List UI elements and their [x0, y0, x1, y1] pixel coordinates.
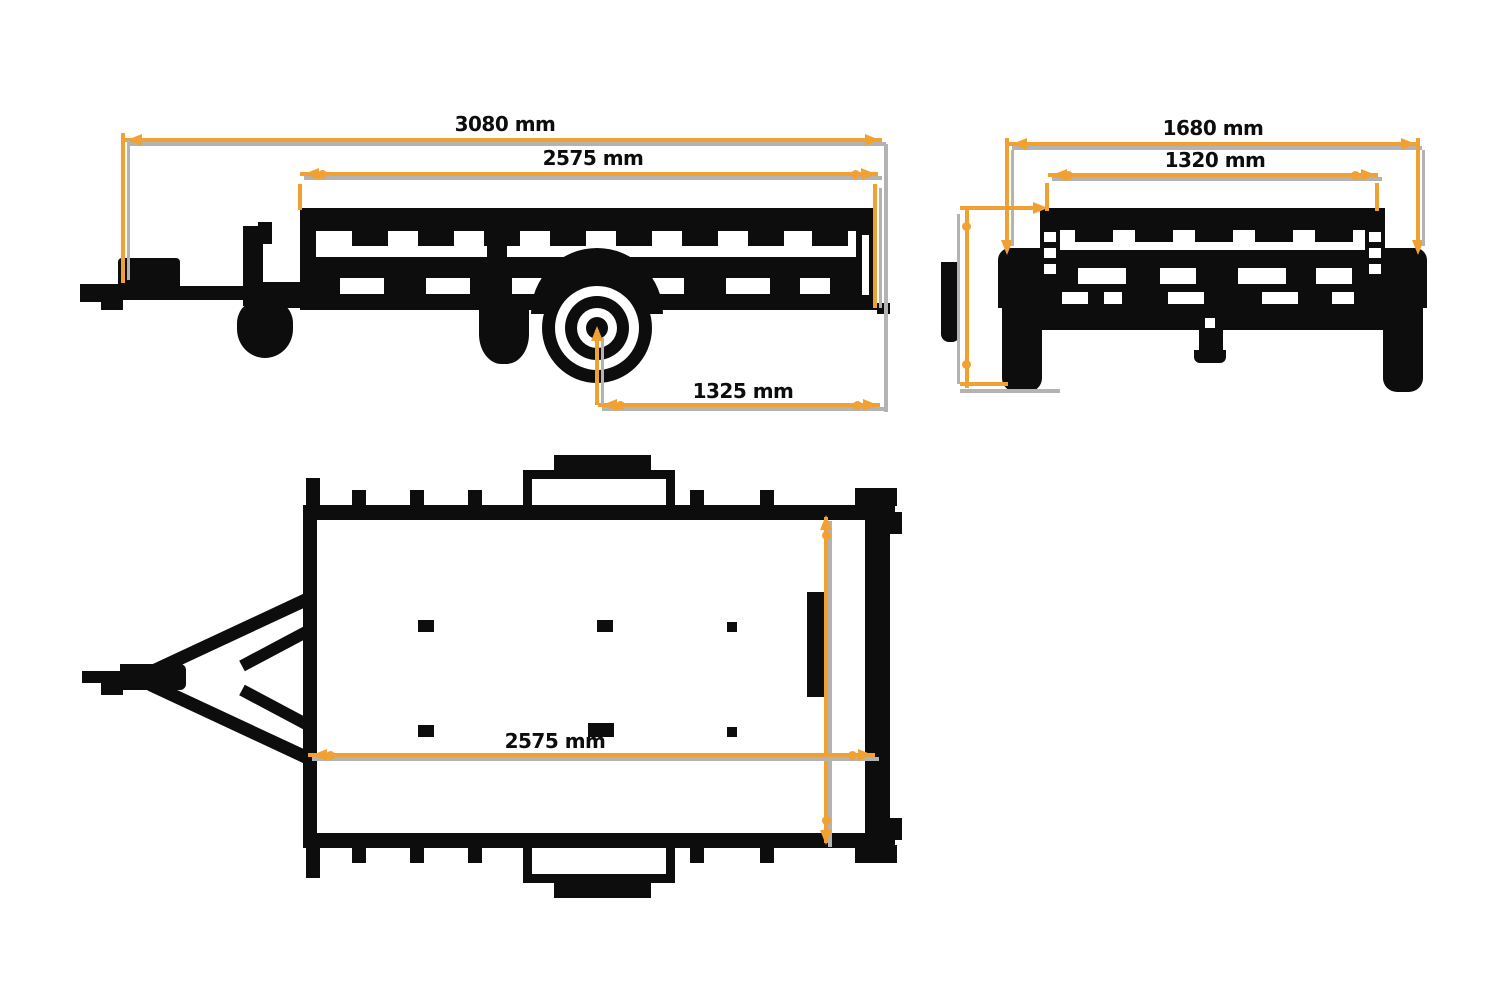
- arrow-right-icon: [1361, 169, 1376, 181]
- dim-dot: [1064, 171, 1073, 180]
- ext-shadow: [957, 214, 960, 384]
- arrow-left-icon: [304, 168, 319, 180]
- ext-line: [298, 184, 302, 210]
- dim-dot: [962, 222, 971, 231]
- arrow-down-icon: [820, 830, 832, 845]
- dim-line-top-length: [308, 753, 875, 757]
- ext-line: [1375, 183, 1379, 211]
- dim-line-overall-length: [123, 138, 882, 142]
- arrow-up-icon: [591, 326, 603, 341]
- ext-shadow: [1422, 150, 1425, 246]
- arrow-right-icon: [858, 749, 873, 761]
- trailer-dimension-drawing: 3080 mm 2575 mm 1325 mm 1680 mm: [0, 0, 1500, 1000]
- dim-line-overall-width: [1008, 142, 1418, 146]
- arrow-right-icon: [863, 399, 878, 411]
- ext-line: [1005, 138, 1009, 240]
- dim-label-overall-width: 1680 mm: [1148, 118, 1278, 138]
- dim-dot: [822, 816, 831, 825]
- ext-line: [595, 330, 599, 405]
- dim-label-box-length: 2575 mm: [528, 148, 658, 168]
- dim-dot: [853, 401, 862, 410]
- dim-label-top-length: 2575 mm: [490, 731, 620, 751]
- dim-dot: [326, 751, 335, 760]
- ext-line: [121, 133, 125, 283]
- dim-dot: [318, 170, 327, 179]
- dimension-layer: 3080 mm 2575 mm 1325 mm 1680 mm: [0, 0, 1500, 1000]
- ext-line-gray: [884, 144, 888, 412]
- ext-shadow: [1011, 150, 1014, 246]
- arrow-right-icon: [1401, 138, 1416, 150]
- ext-shadow: [127, 140, 130, 280]
- dim-dot: [851, 170, 860, 179]
- dim-dot: [822, 531, 831, 540]
- dim-height-bottom-line: [960, 382, 1008, 386]
- dim-line-box-width: [824, 517, 828, 843]
- arrow-left-icon: [602, 399, 617, 411]
- ext-line: [873, 184, 877, 308]
- arrow-left-icon: [1012, 138, 1027, 150]
- ext-shadow: [879, 188, 882, 308]
- ext-shadow: [960, 389, 1060, 393]
- dim-label-overall-length: 3080 mm: [440, 114, 570, 134]
- dim-dot: [962, 360, 971, 369]
- dim-dot: [1351, 171, 1360, 180]
- dim-line-internal-width: [1048, 173, 1378, 177]
- arrow-left-icon: [312, 749, 327, 761]
- dim-line-axle-rear: [598, 403, 880, 407]
- dim-label-internal-width: 1320 mm: [1150, 150, 1280, 170]
- arrow-right-icon: [1033, 202, 1048, 214]
- dim-label-axle-rear: 1325 mm: [678, 381, 808, 401]
- dim-dot: [616, 401, 625, 410]
- ext-line: [1416, 138, 1420, 240]
- dim-height-top-line: [960, 206, 1036, 210]
- arrow-up-icon: [820, 515, 832, 530]
- ext-shadow: [601, 338, 604, 404]
- dim-dot: [848, 751, 857, 760]
- arrow-right-icon: [865, 134, 880, 146]
- dim-line-box-length: [300, 172, 878, 176]
- arrow-right-icon: [861, 168, 876, 180]
